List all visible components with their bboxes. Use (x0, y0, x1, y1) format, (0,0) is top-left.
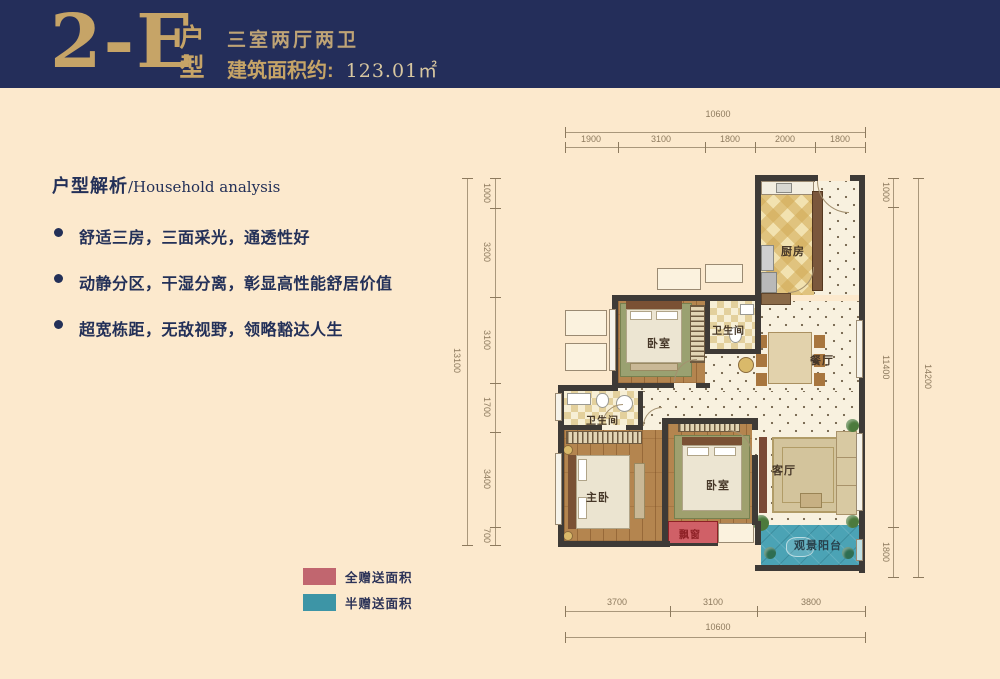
unit-suffix: 户型 (176, 24, 204, 84)
balcony-plant (764, 547, 776, 559)
dim-tick (565, 606, 566, 617)
dim-line (565, 637, 865, 638)
plant (846, 419, 859, 432)
coffee-table (800, 493, 822, 508)
dim-right-total: 14200 (921, 347, 933, 407)
dim-top-seg: 1800 (710, 134, 750, 144)
ac-platform (705, 264, 743, 283)
bed-bench (634, 463, 645, 519)
room-label-living: 客厅 (772, 462, 796, 478)
bullet-dot-icon (54, 320, 63, 329)
half-gift-label: 半赠送面积 (345, 593, 413, 612)
dim-tick (865, 142, 866, 153)
dim-line (565, 611, 865, 612)
wall (612, 295, 761, 301)
window (555, 453, 562, 525)
bath-sink (567, 393, 591, 405)
dim-bottom-seg: 3800 (791, 597, 831, 607)
room-label-bedroom-mid: 卧室 (706, 477, 730, 493)
wall (668, 543, 718, 546)
room-label-kitchen: 厨房 (781, 243, 805, 259)
dim-tick (755, 142, 756, 153)
dim-left-seg: 700 (480, 516, 492, 556)
ac-platform (657, 268, 701, 290)
ac-platform (565, 343, 607, 371)
bed-bench (630, 363, 678, 371)
dim-top-seg: 1800 (820, 134, 860, 144)
dim-tick (490, 383, 501, 384)
bullet-dot-icon (54, 274, 63, 283)
dim-line (918, 178, 919, 577)
entry-cabinet (812, 191, 823, 291)
sofa (836, 431, 857, 515)
dim-tick (565, 127, 566, 138)
wall (696, 383, 710, 388)
wall (558, 385, 618, 391)
bed-headboard (568, 455, 576, 529)
dim-tick (865, 632, 866, 643)
dim-line (467, 178, 468, 545)
bath-sink (740, 304, 754, 315)
dining-table (768, 332, 812, 384)
dim-tick (565, 632, 566, 643)
wall (755, 565, 865, 571)
room-label-balcony: 观景阳台 (794, 537, 842, 553)
dim-tick (913, 178, 924, 179)
dining-chair (756, 373, 767, 386)
dim-tick (757, 606, 758, 617)
dim-tick (865, 606, 866, 617)
dim-tick (490, 432, 501, 433)
layout-description: 三室两厅两卫 (227, 25, 359, 52)
window (856, 433, 863, 511)
dim-tick (490, 178, 501, 179)
pillow (656, 311, 678, 320)
analysis-item: 动静分区，干湿分离，彰显高性能舒居价值 (52, 270, 482, 294)
dim-top-seg: 3100 (641, 134, 681, 144)
stove (761, 272, 777, 293)
ac-platform (718, 523, 754, 543)
pillow (578, 459, 587, 481)
bullet-dot-icon (54, 228, 63, 237)
area-value: 123.01㎡ (346, 60, 438, 82)
legend-row-full-gift: 全赠送面积 (303, 567, 413, 586)
analysis-title-zh: 户型解析 (52, 176, 128, 196)
dim-right-seg: 1000 (879, 172, 891, 212)
dim-tick (888, 527, 899, 528)
wall (668, 418, 758, 424)
unit-code: 2-E (50, 0, 195, 88)
dim-line (565, 147, 865, 148)
dim-left-seg: 3200 (480, 232, 492, 272)
dim-tick (490, 527, 501, 528)
dim-tick (618, 142, 619, 153)
full-gift-label: 全赠送面积 (345, 567, 413, 586)
dim-tick (705, 142, 706, 153)
dim-bottom-seg: 3700 (597, 597, 637, 607)
legend-row-half-gift: 半赠送面积 (303, 593, 413, 612)
dining-chair (814, 335, 825, 348)
dining-chair (814, 373, 825, 386)
balcony-plant (842, 547, 854, 559)
dining-chair (756, 354, 767, 367)
analysis-item-text: 超宽栋距，无敌视野，领略豁达人生 (79, 322, 343, 339)
pillow (630, 311, 652, 320)
window (609, 309, 616, 371)
dim-left-seg: 3400 (480, 459, 492, 499)
area-row: 建筑面积约:123.01㎡ (227, 54, 438, 83)
dim-tick (565, 142, 566, 153)
analysis-item-text: 动静分区，干湿分离，彰显高性能舒居价值 (79, 276, 393, 293)
dim-top-seg: 1900 (571, 134, 611, 144)
dim-top-seg: 2000 (765, 134, 805, 144)
dim-tick (462, 545, 473, 546)
dim-tick (490, 297, 501, 298)
balcony-window (856, 539, 863, 561)
bed-headboard (626, 301, 682, 309)
area-label: 建筑面积约: (227, 60, 334, 82)
dim-right-seg: 1800 (879, 532, 891, 572)
ac-platform (565, 310, 607, 336)
dim-left-total: 13100 (450, 331, 462, 391)
floorplan: 10600 1900 3100 1800 2000 1800 13100 100… (450, 95, 950, 665)
full-gift-swatch (303, 568, 336, 585)
dim-left-seg: 1700 (480, 387, 492, 427)
wall (705, 301, 710, 353)
wall (705, 349, 761, 354)
dim-left-seg: 3100 (480, 320, 492, 360)
analysis-title-en: /Household analysis (128, 178, 280, 196)
sofa-cushion-line (836, 457, 857, 458)
dim-tick (815, 142, 816, 153)
kitchen-sink (776, 183, 792, 193)
wall (755, 521, 761, 545)
window (856, 320, 863, 378)
nightstand (563, 531, 573, 541)
tv-cabinet (759, 437, 767, 513)
wardrobe (690, 305, 705, 363)
room-label-bedroom-upper: 卧室 (647, 335, 671, 351)
wall (755, 175, 761, 354)
dim-tick (490, 545, 501, 546)
analysis-list: 舒适三房，三面采光，通透性好 动静分区，干湿分离，彰显高性能舒居价值 超宽栋距，… (52, 224, 482, 340)
analysis-block: 户型解析/Household analysis 舒适三房，三面采光，通透性好 动… (52, 172, 482, 362)
legend: 全赠送面积 半赠送面积 (303, 567, 413, 619)
room-label-dining: 餐厅 (810, 352, 834, 368)
room-label-bay-window: 飘窗 (679, 526, 701, 541)
nightstand (563, 445, 573, 455)
dim-right-seg: 11400 (879, 337, 891, 397)
wall (612, 383, 674, 388)
analysis-item-text: 舒适三房，三面采光，通透性好 (79, 230, 310, 247)
dim-bottom-seg: 3100 (693, 597, 733, 607)
dim-top-total: 10600 (688, 109, 748, 119)
half-gift-swatch (303, 594, 336, 611)
dim-tick (462, 178, 473, 179)
dim-bottom-total: 10600 (688, 622, 748, 632)
analysis-title: 户型解析/Household analysis (52, 172, 482, 198)
toilet (596, 393, 609, 408)
title-banner: 2-E 户型 三室两厅两卫 建筑面积约:123.01㎡ (0, 0, 1000, 88)
room-label-bath-upper: 卫生间 (712, 322, 745, 337)
wall (752, 455, 758, 525)
plant (846, 515, 859, 528)
pillow (687, 447, 709, 456)
dim-left-seg: 1000 (480, 173, 492, 213)
wall (662, 418, 668, 541)
analysis-item: 舒适三房，三面采光，通透性好 (52, 224, 482, 248)
dim-tick (670, 606, 671, 617)
kitchen-cabinet (761, 293, 791, 305)
sofa-cushion-line (836, 485, 857, 486)
dim-tick (913, 577, 924, 578)
room-label-bath-lower: 卫生间 (586, 412, 619, 427)
fridge (761, 245, 774, 271)
dim-line (893, 178, 894, 577)
dim-tick (888, 577, 899, 578)
window (555, 393, 562, 421)
dim-tick (865, 127, 866, 138)
wall (755, 175, 818, 181)
analysis-item: 超宽栋距，无敌视野，领略豁达人生 (52, 316, 482, 340)
wall (558, 541, 670, 547)
dim-line (565, 132, 865, 133)
dim-tick (490, 208, 501, 209)
wall (752, 418, 758, 430)
wall (626, 425, 643, 430)
room-label-master: 主卧 (586, 489, 610, 505)
wardrobe (566, 431, 642, 444)
dim-line (495, 178, 496, 545)
hall-vanity (738, 357, 754, 373)
